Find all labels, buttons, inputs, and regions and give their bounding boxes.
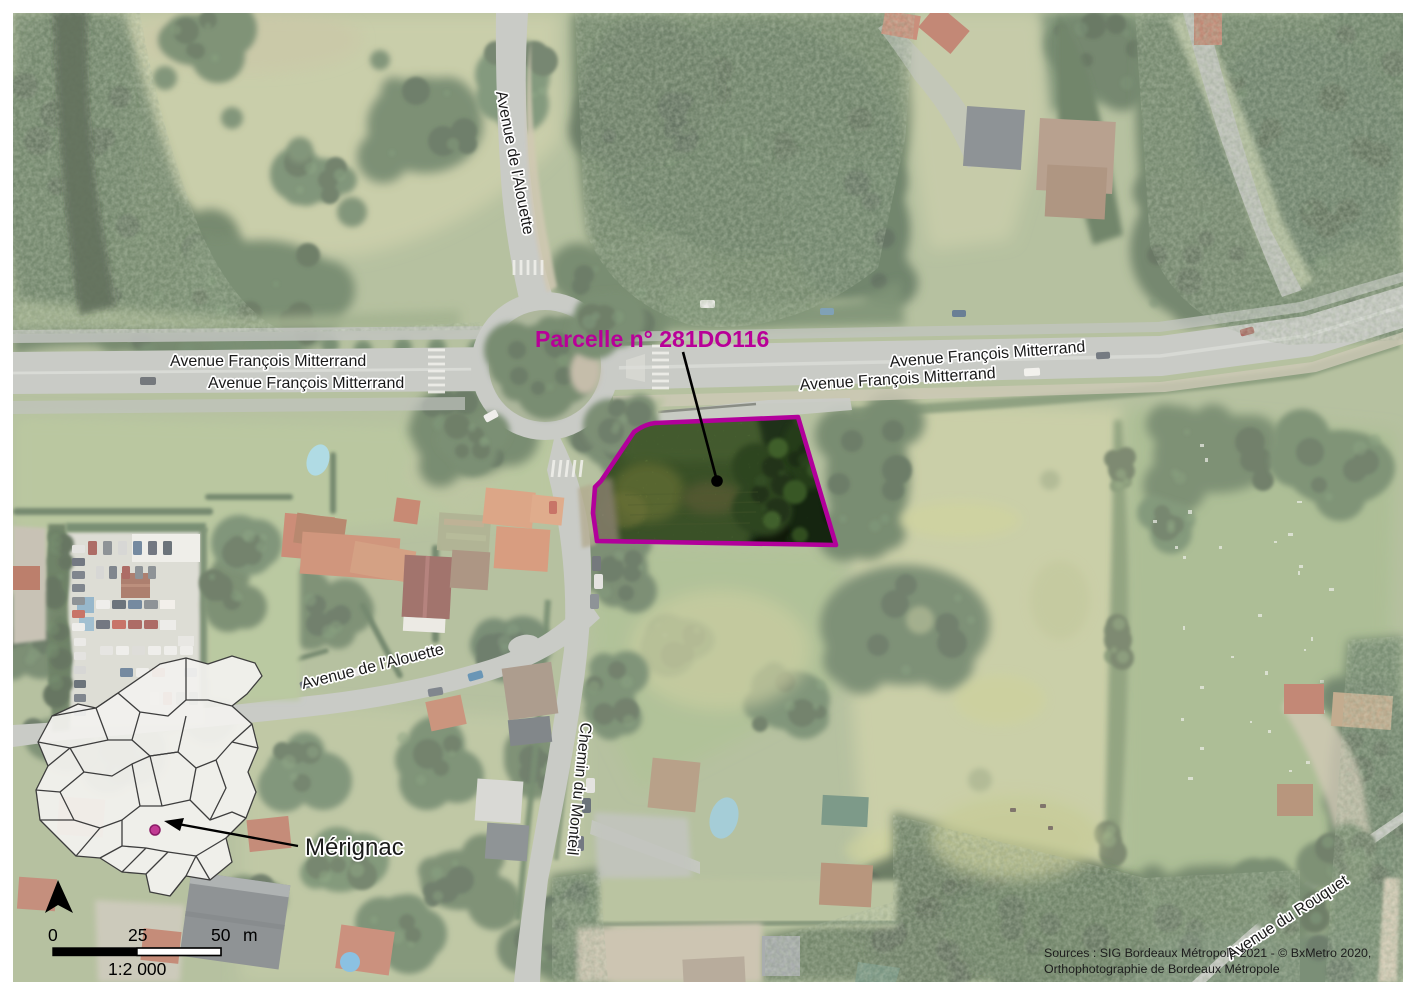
svg-text:Parcelle n° 281DO116: Parcelle n° 281DO116 (535, 326, 769, 352)
svg-text:Mérignac: Mérignac (305, 834, 404, 861)
svg-text:Avenue François Mitterrand: Avenue François Mitterrand (208, 375, 404, 392)
svg-text:Orthophotographie de Bordeaux: Orthophotographie de Bordeaux Métropole (1044, 962, 1280, 976)
svg-text:50: 50 (211, 925, 231, 945)
svg-text:25: 25 (128, 925, 147, 945)
svg-text:m: m (243, 925, 258, 945)
svg-text:0: 0 (48, 925, 58, 945)
svg-text:Sources : SIG Bordeaux Métropo: Sources : SIG Bordeaux Métropole 2021 - … (1044, 946, 1371, 960)
svg-text:1:2 000: 1:2 000 (108, 959, 167, 979)
svg-text:Avenue François Mitterrand: Avenue François Mitterrand (170, 353, 366, 370)
